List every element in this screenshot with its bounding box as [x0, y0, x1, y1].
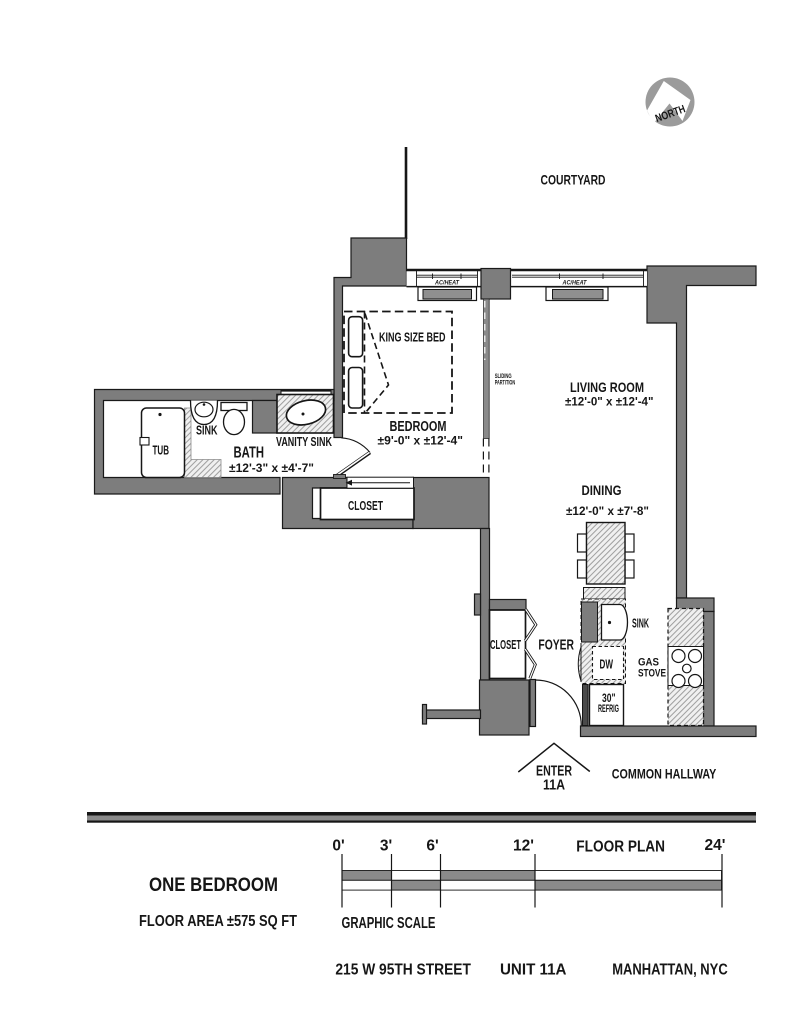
svg-text:3': 3' [380, 838, 392, 855]
svg-text:STOVE: STOVE [638, 668, 666, 680]
svg-text:PARTITION: PARTITION [495, 380, 516, 387]
svg-text:0': 0' [332, 838, 344, 855]
svg-text:±12'-3" x ±4'-7": ±12'-3" x ±4'-7" [229, 461, 314, 475]
svg-text:MANHATTAN, NYC: MANHATTAN, NYC [612, 962, 728, 979]
svg-text:SINK: SINK [196, 424, 218, 438]
svg-text:ONE BEDROOM: ONE BEDROOM [149, 874, 278, 896]
svg-text:±9'-0" x ±12'-4": ±9'-0" x ±12'-4" [378, 433, 464, 447]
svg-text:FOYER: FOYER [538, 638, 574, 654]
svg-text:UNIT 11A: UNIT 11A [500, 962, 567, 979]
svg-text:11A: 11A [543, 778, 565, 794]
svg-text:SINK: SINK [632, 616, 649, 630]
svg-text:REFRIG: REFRIG [598, 703, 619, 715]
svg-text:GRAPHIC SCALE: GRAPHIC SCALE [342, 915, 436, 932]
svg-text:215 W 95TH STREET: 215 W 95TH STREET [335, 962, 471, 979]
svg-text:±12'-0" x ±7'-8": ±12'-0" x ±7'-8" [566, 504, 649, 518]
svg-text:AC/HEAT: AC/HEAT [434, 280, 460, 287]
svg-text:DW: DW [600, 656, 614, 671]
svg-text:6': 6' [426, 838, 438, 855]
svg-text:TUB: TUB [153, 442, 170, 457]
svg-text:COMMON HALLWAY: COMMON HALLWAY [612, 766, 717, 782]
svg-text:VANITY SINK: VANITY SINK [276, 434, 332, 449]
svg-text:COURTYARD: COURTYARD [541, 172, 606, 188]
svg-text:DINING: DINING [582, 482, 622, 498]
svg-text:FLOOR AREA ±575 SQ FT: FLOOR AREA ±575 SQ FT [139, 913, 297, 930]
svg-text:12': 12' [513, 838, 534, 855]
svg-text:CLOSET: CLOSET [490, 637, 521, 652]
svg-text:CLOSET: CLOSET [348, 498, 383, 513]
svg-text:BATH: BATH [234, 445, 265, 462]
svg-text:FLOOR PLAN: FLOOR PLAN [576, 838, 665, 855]
svg-text:LIVING ROOM: LIVING ROOM [570, 379, 644, 395]
svg-text:AC/HEAT: AC/HEAT [562, 280, 588, 287]
svg-text:±12'-0" x ±12'-4": ±12'-0" x ±12'-4" [565, 395, 654, 409]
svg-text:KING SIZE BED: KING SIZE BED [379, 330, 446, 345]
svg-text:24': 24' [705, 837, 726, 854]
